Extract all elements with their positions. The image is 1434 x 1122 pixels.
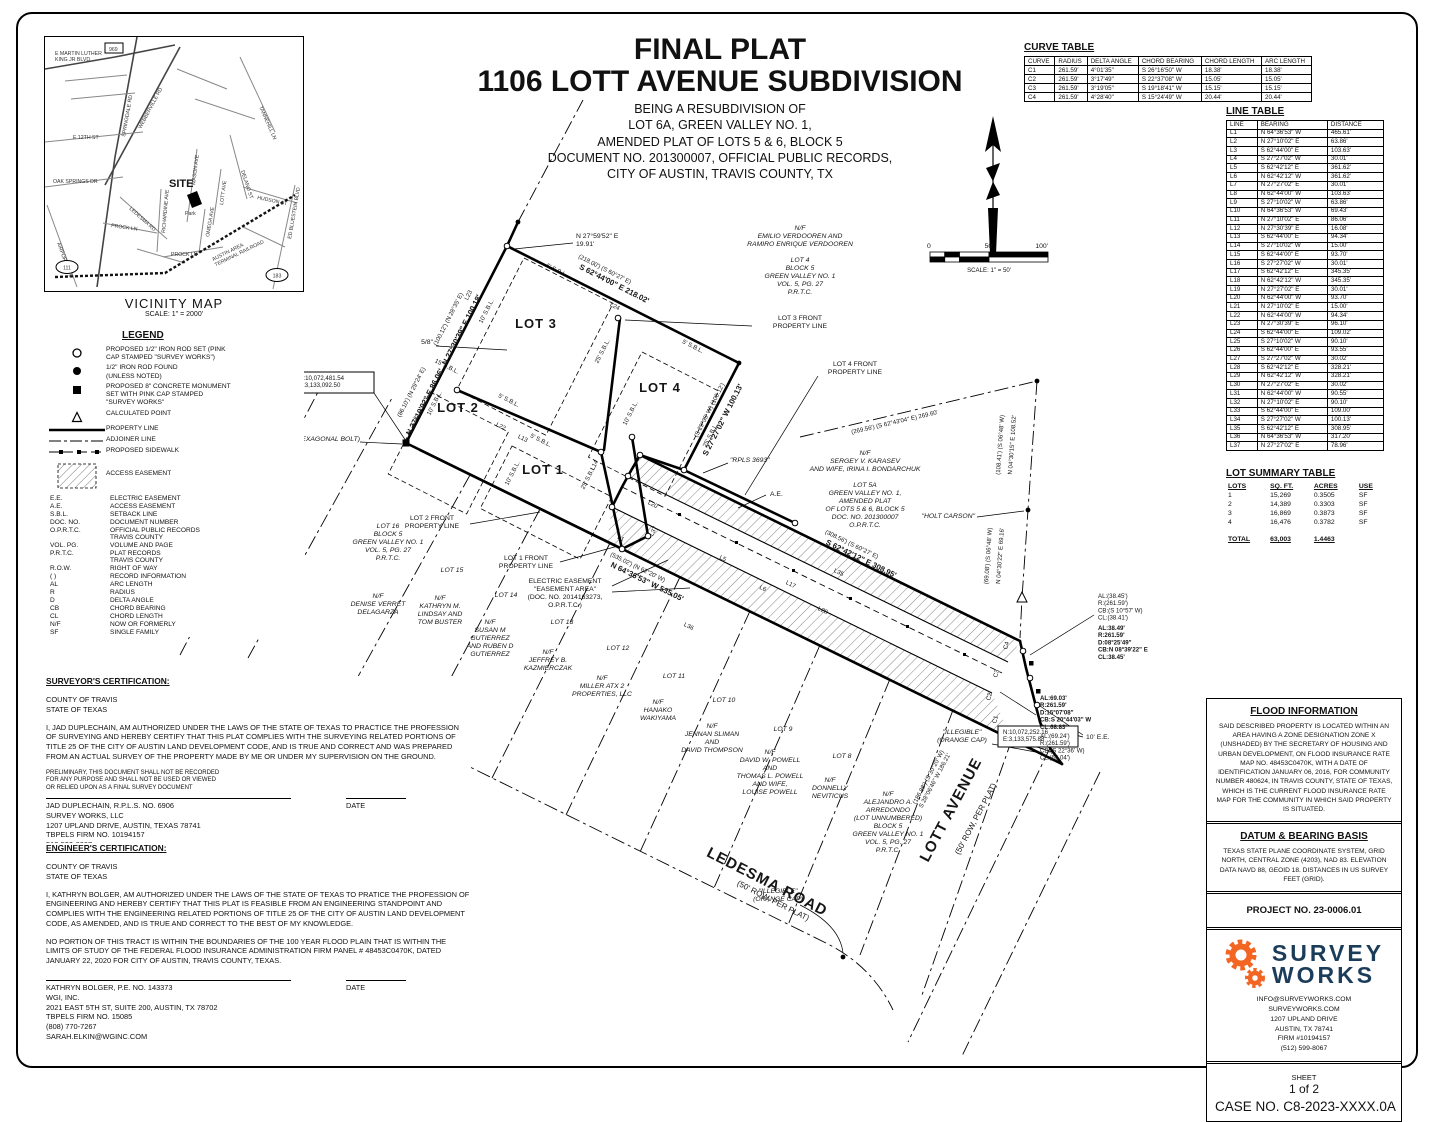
- table-row: L12N 27°30'39" E16.08': [1227, 225, 1384, 234]
- svg-text:E 12TH ST: E 12TH ST: [73, 135, 99, 141]
- svg-text:LOT 2: LOT 2: [437, 400, 479, 415]
- svg-text:5' S.B.L.: 5' S.B.L.: [529, 432, 553, 449]
- svg-text:L14: L14: [589, 459, 600, 472]
- engineer-date-line: DATE: [346, 980, 406, 1042]
- table-row: L3S 62°44'00" E103.63': [1227, 147, 1384, 156]
- table-row: L16S 27°27'02" W30.01': [1227, 260, 1384, 269]
- table-row: L1N 64°36'53" W465.61': [1227, 129, 1384, 138]
- svg-text:L13: L13: [517, 433, 530, 444]
- table-row: CBCHORD BEARING: [48, 605, 202, 613]
- svg-text:LOT 11: LOT 11: [663, 673, 685, 680]
- table-header-row: LOTSSQ. FT.ACRESUSE: [1226, 482, 1386, 491]
- info-column: FLOOD INFORMATION SAID DESCRIBED PROPERT…: [1206, 698, 1402, 1122]
- svg-text:10' S.B.L.: 10' S.B.L.: [622, 400, 640, 427]
- svg-text:10' S.B.L.: 10' S.B.L.: [504, 460, 522, 487]
- svg-text:N/FHANAKOWAKIYAMA: N/FHANAKOWAKIYAMA: [640, 699, 677, 722]
- table-row: L7N 27°27'02" E30.01': [1227, 181, 1384, 190]
- table-row: L10N 64°36'53" W69.43': [1227, 207, 1384, 216]
- table-row: R.O.W.RIGHT OF WAY: [48, 565, 202, 573]
- table-row: VOL. PG.VOLUME AND PAGE: [48, 542, 202, 550]
- svg-text:50': 50': [985, 243, 994, 250]
- access-easement-icon: [48, 462, 106, 489]
- table-row: L8N 62°44'00" W103.63': [1227, 190, 1384, 199]
- table-row: L20N 62°44'00" W93.70': [1227, 294, 1384, 303]
- page-title-line1: FINAL PLAT: [400, 34, 1040, 66]
- table-row: DDELTA ANGLE: [48, 597, 202, 605]
- case-number: CASE NO. C8-2023-XXXX.0A: [1215, 1099, 1393, 1114]
- scale-bar: 0 50' 100' SCALE: 1" = 50': [927, 243, 1048, 274]
- svg-text:N/FJENNAN SLIMANANDDAVID THOMP: N/FJENNAN SLIMANANDDAVID THOMPSON: [681, 723, 743, 754]
- table-row: L23N 27°30'39" E96.10': [1227, 320, 1384, 329]
- svg-text:(269.56') (S 62°43'04" E) 269: (269.56') (S 62°43'04" E) 269.60': [851, 409, 939, 436]
- svg-text:C3: C3: [992, 668, 1001, 678]
- table-row: C1261.59'4°01'35"S 26°16'50" W18.38'18.3…: [1025, 66, 1312, 75]
- table-row: L31N 62°44'00" W90.55': [1227, 390, 1384, 399]
- svg-text:5/8": 5/8": [421, 339, 433, 346]
- svg-text:RICHARDINE AVE: RICHARDINE AVE: [161, 189, 171, 233]
- table-row: L27S 27°27'02" W30.02': [1227, 355, 1384, 364]
- svg-text:LOT 15: LOT 15: [441, 567, 464, 574]
- project-number: PROJECT NO. 23-0006.01: [1207, 894, 1401, 930]
- table-row: DOC. NO.DOCUMENT NUMBER: [48, 519, 202, 527]
- svg-text:N 04°30'22" E 69.16': N 04°30'22" E 69.16': [995, 528, 1006, 584]
- svg-text:LOT 12: LOT 12: [607, 645, 630, 652]
- svg-text:Park: Park: [185, 211, 196, 217]
- table-row: L30N 27°27'02" E30.02': [1227, 381, 1384, 390]
- svg-text:5' S.B.L.: 5' S.B.L.: [497, 392, 521, 409]
- svg-text:N/FSUSAN MGUTIERREZAND RUBEN D: N/FSUSAN MGUTIERREZAND RUBEN DGUTIERREZ: [466, 619, 514, 658]
- table-row: O.P.R.T.C.OFFICIAL PUBLIC RECORDS TRAVIS…: [48, 527, 202, 542]
- table-row: L4S 27°27'02" W30.01': [1227, 155, 1384, 164]
- engineer-signature-line: KATHRYN BOLGER, P.E. NO. 143373 WGI, INC…: [46, 980, 291, 1042]
- table-row: S.B.L.SETBACK LINE: [48, 511, 202, 519]
- table-row: L37N 27°27'02" E78.96': [1227, 442, 1384, 451]
- svg-text:N 04°30'15" E 108.52': N 04°30'15" E 108.52': [1007, 415, 1018, 475]
- svg-text:LOT 3: LOT 3: [515, 316, 557, 331]
- table-row: C3261.59'3°19'05"S 19°18'41" W15.15'15.1…: [1025, 84, 1312, 93]
- table-row: 115,2690.3505SF: [1226, 491, 1386, 500]
- table-row: C4261.59'4°28'40"S 15°24'49" W20.44'20.4…: [1025, 93, 1312, 102]
- svg-text:LOTT AVE: LOTT AVE: [219, 180, 228, 205]
- svg-text:LOT 13: LOT 13: [551, 619, 574, 626]
- proposed-sidewalk-icon: [48, 447, 106, 456]
- coord-ne-label: N:10,072,481.54E:3,133,092.50: [299, 375, 345, 389]
- table-row: 316,8690.3873SF: [1226, 509, 1386, 518]
- vicinity-street-labels: E MARTIN LUTHERKING JR BLVD SPRINGDALE R…: [53, 51, 301, 279]
- title-block: FINAL PLAT 1106 LOTT AVENUE SUBDIVISION …: [400, 34, 1040, 182]
- road-labels: LEDESMA ROAD (50' ROW, PER PLAT) LOTT AV…: [704, 755, 999, 923]
- table-row: L29N 62°42'12" W328.21': [1227, 372, 1384, 381]
- svg-text:N/FMILLER ATX 2PROPERTIES, LLC: N/FMILLER ATX 2PROPERTIES, LLC: [572, 675, 632, 698]
- table-row: A.E.ACCESS EASEMENT: [48, 503, 202, 511]
- svg-text:LOT 4: LOT 4: [639, 380, 681, 395]
- svg-text:LOT 14: LOT 14: [495, 592, 518, 599]
- table-row: L21N 27°10'02" E15.00': [1227, 303, 1384, 312]
- svg-text:PROCK LN: PROCK LN: [111, 223, 138, 233]
- svg-text:HUDSON ST: HUDSON ST: [257, 195, 289, 207]
- table-row: L18N 62°42'12" W345.35': [1227, 277, 1384, 286]
- adjoiner-line-icon: [48, 436, 106, 445]
- svg-text:N/FSERGEY V. KARASEVAND WIFE,: N/FSERGEY V. KARASEVAND WIFE, IRINA I. B…: [809, 450, 921, 529]
- table-row: L14S 27°10'02" W15.00': [1227, 242, 1384, 251]
- svg-text:N/FDONNELLYNEVITICUS: N/FDONNELLYNEVITICUS: [812, 777, 849, 800]
- table-row: L6N 62°42'12" W361.62': [1227, 173, 1384, 182]
- vicinity-map-canvas: E MARTIN LUTHERKING JR BLVD SPRINGDALE R…: [45, 37, 301, 289]
- svg-text:ELECTRIC EASEMENT"EASEMENT ARE: ELECTRIC EASEMENT"EASEMENT AREA"(DOC. NO…: [528, 578, 603, 609]
- svg-text:L17: L17: [785, 579, 798, 590]
- table-row: L13S 62°44'00" E94.34': [1227, 233, 1384, 242]
- svg-text:100': 100': [1035, 243, 1048, 250]
- table-row: L24S 62°44'00" E109.02': [1227, 329, 1384, 338]
- svg-text:OAK SPRINGS DR: OAK SPRINGS DR: [53, 179, 98, 185]
- datum-bearing-basis: DATUM & BEARING BASIS TEXAS STATE PLANE …: [1207, 824, 1401, 894]
- svg-text:(HEXAGONAL BOLT): (HEXAGONAL BOLT): [294, 436, 360, 443]
- svg-text:A.E.: A.E.: [770, 491, 783, 498]
- svg-text:183: 183: [273, 274, 282, 280]
- table-row: L35S 62°42'12" E308.95': [1227, 425, 1384, 434]
- table-row: RRADIUS: [48, 589, 202, 597]
- table-row: C2261.59'3°17'49"S 22°37'08" W15.05'15.0…: [1025, 75, 1312, 84]
- calculated-point-icon: [48, 410, 106, 423]
- page-subtitle: BEING A RESUBDIVISION OF LOT 6A, GREEN V…: [400, 101, 1040, 182]
- svg-text:(108.41') (S 06°48' W): (108.41') (S 06°48' W): [995, 415, 1006, 475]
- svg-text:LOT 3 FRONTPROPERTY LINE: LOT 3 FRONTPROPERTY LINE: [773, 315, 828, 330]
- svg-text:AL:69.03'R:261.59'D:15°07'08"C: AL:69.03'R:261.59'D:15°07'08"CB:S 20°44'…: [1040, 695, 1091, 731]
- vicinity-scale: SCALE: 1" = 2000': [44, 311, 304, 318]
- svg-text:TANNEHILL LN: TANNEHILL LN: [257, 105, 277, 141]
- firm-logo-block: SURVEY WORKS INFO@SURVEYWORKS.COM SURVEY…: [1207, 930, 1401, 1064]
- table-row: L33S 62°44'00" E109.00': [1227, 407, 1384, 416]
- table-row: ALARC LENGTH: [48, 581, 202, 589]
- svg-text:OMEGA AVE: OMEGA AVE: [205, 206, 216, 237]
- table-row: L26S 62°44'00" E93.55': [1227, 346, 1384, 355]
- svg-text:N/FDAVID W. POWELLANDTHOMAS L.: N/FDAVID W. POWELLANDTHOMAS L. POWELLAND…: [737, 749, 804, 796]
- table-row: L2N 27°10'02" E63.86': [1227, 138, 1384, 147]
- svg-text:SCALE: 1" = 50': SCALE: 1" = 50': [967, 267, 1011, 274]
- svg-text:E MARTIN LUTHERKING JR BLVD: E MARTIN LUTHERKING JR BLVD: [55, 51, 102, 63]
- firm-contact: INFO@SURVEYWORKS.COM SURVEYWORKS.COM 120…: [1215, 995, 1393, 1054]
- table-row: L17S 62°42'12" E345.35': [1227, 268, 1384, 277]
- svg-text:LOT 10: LOT 10: [713, 697, 736, 704]
- svg-text:N 27°59'52" E19.91': N 27°59'52" E19.91': [576, 232, 619, 248]
- svg-text:"RPLS 3693": "RPLS 3693": [730, 457, 770, 464]
- legend: LEGEND PROPOSED 1/2" IRON ROD SET (PINK …: [48, 330, 304, 637]
- logo-word-works: WORKS: [1272, 965, 1384, 987]
- table-row: L32N 27°10'02" E90.10': [1227, 399, 1384, 408]
- svg-text:N/FKATHRYN M.LINDSAY ANDTOM BU: N/FKATHRYN M.LINDSAY ANDTOM BUSTER: [418, 595, 463, 626]
- svg-text:LOT 2 FRONTPROPERTY LINE: LOT 2 FRONTPROPERTY LINE: [405, 515, 460, 530]
- survey-works-gears-icon: [1224, 939, 1266, 991]
- svg-text:LOT 9: LOT 9: [774, 726, 793, 733]
- svg-text:LOT 4 FRONTPROPERTY LINE: LOT 4 FRONTPROPERTY LINE: [828, 361, 883, 376]
- svg-text:"ILLEGIBLE"(ORANGE CAP): "ILLEGIBLE"(ORANGE CAP): [937, 729, 987, 744]
- svg-text:SITE: SITE: [169, 178, 193, 190]
- table-row: L22N 62°44'00" W94.34': [1227, 312, 1384, 321]
- svg-text:AUSTIN AREATERMINAL RAILROAD: AUSTIN AREATERMINAL RAILROAD: [211, 234, 265, 269]
- svg-text:PROCK LN: PROCK LN: [171, 252, 198, 258]
- table-row: ( )RECORD INFORMATION: [48, 573, 202, 581]
- vicinity-map: E MARTIN LUTHERKING JR BLVD SPRINGDALE R…: [44, 36, 304, 318]
- table-row: P.R.T.C.PLAT RECORDS TRAVIS COUNTY: [48, 550, 202, 565]
- vicinity-caption: VICINITY MAP: [44, 296, 304, 311]
- table-row: 214,3890.3303SF: [1226, 500, 1386, 509]
- svg-text:LOT 1: LOT 1: [522, 462, 564, 477]
- flood-information: FLOOD INFORMATION SAID DESCRIBED PROPERT…: [1207, 699, 1401, 824]
- svg-text:10' E.E.: 10' E.E.: [1086, 734, 1110, 741]
- lot-summary-table: LOT SUMMARY TABLE LOTSSQ. FT.ACRESUSE115…: [1226, 468, 1391, 544]
- sheet-info: SHEET 1 of 2 CASE NO. C8-2023-XXXX.0A: [1207, 1064, 1401, 1121]
- table-row: N/FNOW OR FORMERLY: [48, 621, 202, 629]
- iron-rod-set-icon: [48, 346, 106, 359]
- table-row: L28S 62°42'12" E328.21': [1227, 364, 1384, 373]
- table-row: E.E.ELECTRIC EASEMENT: [48, 495, 202, 503]
- svg-text:WEBBERVILLE RD: WEBBERVILLE RD: [137, 87, 164, 130]
- svg-text:LEDESMA ROAD: LEDESMA ROAD: [704, 844, 830, 920]
- concrete-monument-icon: [48, 383, 106, 396]
- svg-text:L36: L36: [683, 621, 696, 632]
- svg-text:AL:(38.45')R:(261.59')CB:(S 10: AL:(38.45')R:(261.59')CB:(S 10°57' W)CL:…: [1098, 593, 1143, 622]
- table-row: CLCHORD LENGTH: [48, 613, 202, 621]
- table-row: L25S 27°10'02" W90.10': [1227, 338, 1384, 347]
- svg-text:N/FEMILIO VERDOOREN ANDRAMIRO: N/FEMILIO VERDOOREN ANDRAMIRO ENRIQUE VE…: [747, 225, 853, 296]
- svg-text:AL:38.49'R:261.59'D:08°25'49"C: AL:38.49'R:261.59'D:08°25'49"CB:N 08°39'…: [1098, 625, 1148, 661]
- table-header-row: LINEBEARINGDISTANCE: [1227, 121, 1384, 130]
- table-row: L15S 62°44'00" E93.70': [1227, 251, 1384, 260]
- curve-table: CURVE TABLE CURVERADIUSDELTA ANGLECHORD …: [1024, 42, 1312, 102]
- svg-text:LOT 8: LOT 8: [833, 753, 852, 760]
- surveyor-certification: SURVEYOR'S CERTIFICATION: COUNTY OF TRAV…: [46, 676, 471, 860]
- svg-text:969: 969: [109, 47, 118, 53]
- table-row: L36N 64°36'53" W317.20': [1227, 433, 1384, 442]
- svg-text:LOT 1 FRONTPROPERTY LINE: LOT 1 FRONTPROPERTY LINE: [499, 555, 554, 570]
- engineer-certification: ENGINEER'S CERTIFICATION: COUNTY OF TRAV…: [46, 843, 471, 1042]
- table-row: L34S 27°27'02" W100.13': [1227, 416, 1384, 425]
- iron-rod-found-icon: [48, 364, 106, 377]
- table-row: 416,4760.3782SF: [1226, 518, 1386, 528]
- table-row: SFSINGLE FAMILY: [48, 629, 202, 637]
- svg-text:L20: L20: [647, 499, 660, 510]
- table-row: L9S 27°10'02" W63.86': [1227, 199, 1384, 208]
- line-table: LINE TABLE LINEBEARINGDISTANCEL1N 64°36'…: [1226, 106, 1384, 451]
- svg-text:0: 0: [927, 243, 931, 250]
- svg-text:N/FDENISE VERRETDELAGARZA: N/FDENISE VERRETDELAGARZA: [351, 593, 407, 616]
- svg-text:(69.08') (S 06°48' W): (69.08') (S 06°48' W): [983, 527, 994, 584]
- svg-text:N/FJEFFREY B.KAZMIERCZAK: N/FJEFFREY B.KAZMIERCZAK: [524, 649, 573, 672]
- table-row: TOTAL63,0031.4463: [1226, 528, 1386, 545]
- page-title-line2: 1106 LOTT AVENUE SUBDIVISION: [400, 66, 1040, 98]
- table-header-row: CURVERADIUSDELTA ANGLECHORD BEARINGCHORD…: [1025, 57, 1312, 66]
- svg-text:111: 111: [63, 266, 71, 272]
- table-row: L19N 27°27'02" E30.01': [1227, 286, 1384, 295]
- property-line-icon: [48, 425, 106, 434]
- svg-text:25' S.B.L.: 25' S.B.L.: [594, 338, 612, 365]
- table-row: L11N 27°10'02" E86.06': [1227, 216, 1384, 225]
- svg-text:"HOLT CARSON": "HOLT CARSON": [922, 513, 976, 520]
- table-row: L5S 62°42'12" E361.62': [1227, 164, 1384, 173]
